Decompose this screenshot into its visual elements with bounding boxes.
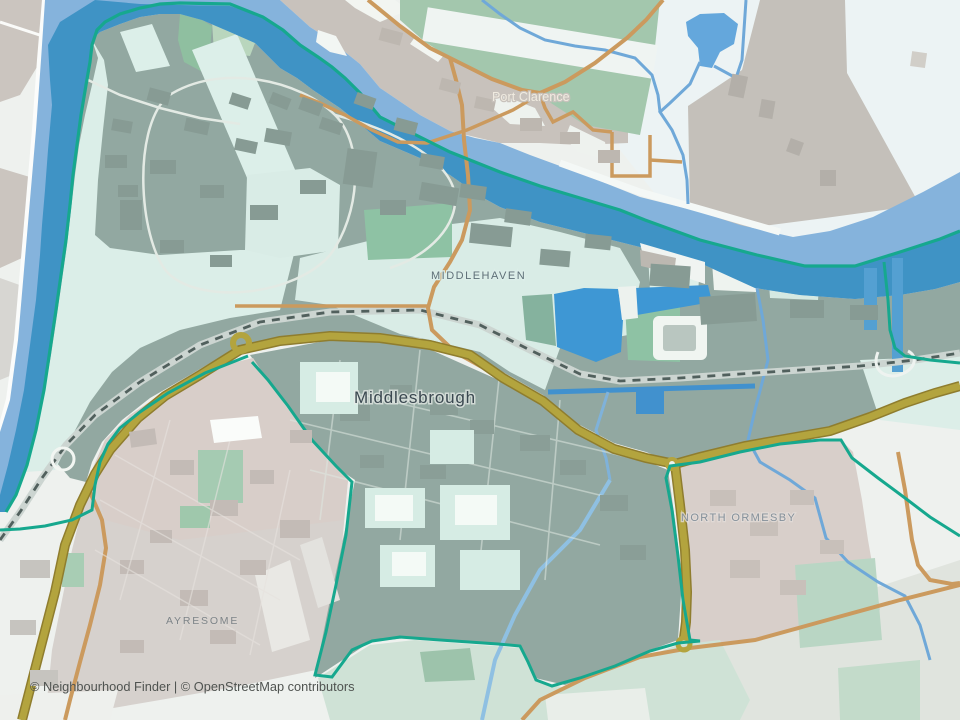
svg-text:© Neighbourhood Finder | © Ope: © Neighbourhood Finder | © OpenStreetMap… xyxy=(30,679,355,694)
svg-text:Middlesbrough: Middlesbrough xyxy=(354,388,476,407)
svg-text:NORTH ORMESBY: NORTH ORMESBY xyxy=(681,512,796,524)
svg-text:MIDDLEHAVEN: MIDDLEHAVEN xyxy=(431,270,526,282)
svg-text:Port Clarence: Port Clarence xyxy=(492,90,570,104)
svg-text:AYRESOME: AYRESOME xyxy=(166,615,239,627)
